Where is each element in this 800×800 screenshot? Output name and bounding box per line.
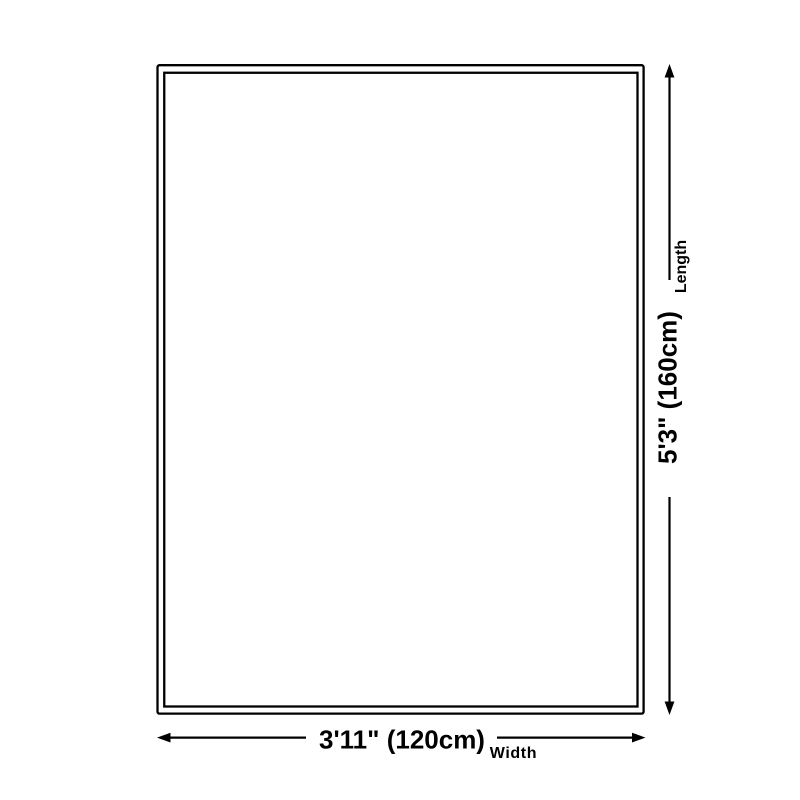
svg-text:3'11" (120cm): 3'11" (120cm) [319,724,485,754]
svg-text:5'3" (160cm): 5'3" (160cm) [653,311,683,464]
svg-text:Length: Length [673,240,690,293]
svg-text:Width: Width [490,745,537,762]
